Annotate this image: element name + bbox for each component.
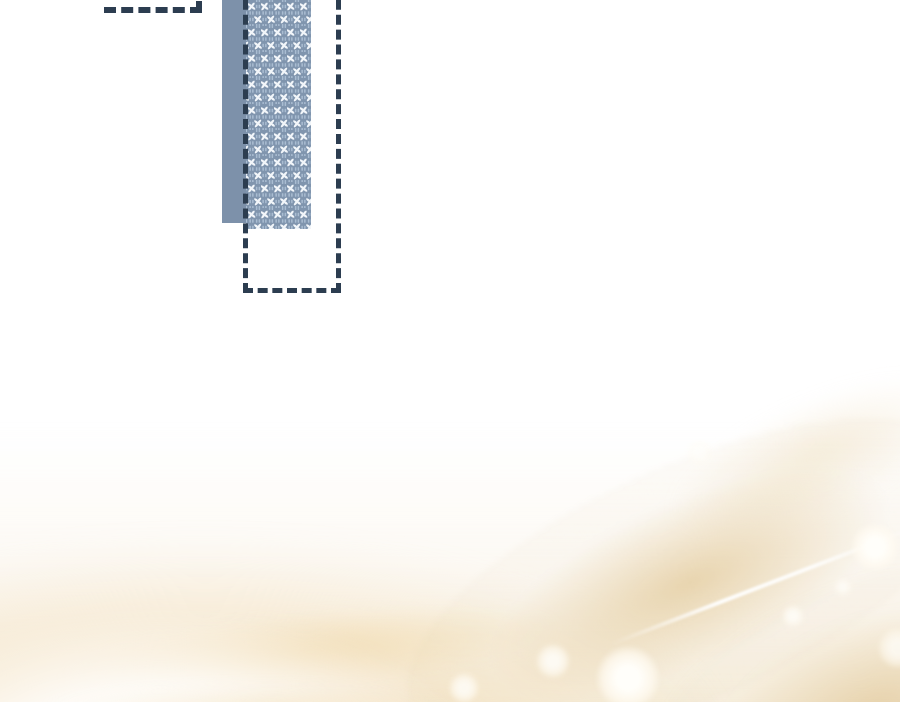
comic-panel <box>0 0 900 702</box>
glow-bottom-wash <box>0 430 900 702</box>
glow-gold-band-bottom <box>0 676 560 702</box>
bokeh-light <box>596 646 660 702</box>
bokeh-light <box>834 578 852 596</box>
bokeh-light <box>851 523 899 571</box>
dashed-panel-border-topleft <box>104 0 202 13</box>
glow-gold-corner-right <box>610 507 900 702</box>
bokeh-light <box>687 440 713 466</box>
bokeh-light <box>782 605 804 627</box>
bokeh-light <box>449 673 479 702</box>
dashed-panel-border-main <box>243 0 341 293</box>
glow-gold-band-diagonal <box>364 351 900 702</box>
glow-cream-arc <box>0 545 730 702</box>
glow-gold-band-mid <box>0 561 664 702</box>
glow-corner-highlight <box>0 608 470 702</box>
glow-gold-band-upper <box>588 301 900 613</box>
bokeh-light <box>536 644 570 678</box>
light-streak <box>610 524 900 646</box>
golden-glow-background <box>0 0 900 702</box>
bokeh-light <box>878 628 900 668</box>
